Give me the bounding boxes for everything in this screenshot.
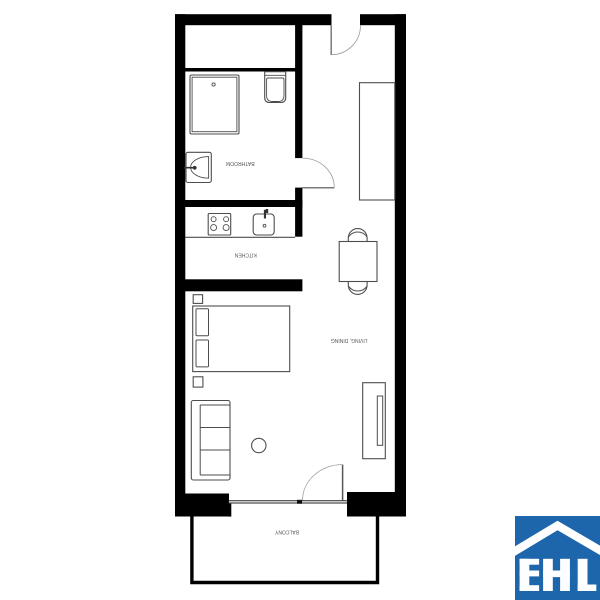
svg-text:BATHROOM: BATHROOM [226,160,255,166]
svg-text:KITCHEN: KITCHEN [234,252,256,258]
svg-text:LIVING, DINING: LIVING, DINING [331,337,368,343]
svg-text:BALCONY: BALCONY [274,529,299,535]
